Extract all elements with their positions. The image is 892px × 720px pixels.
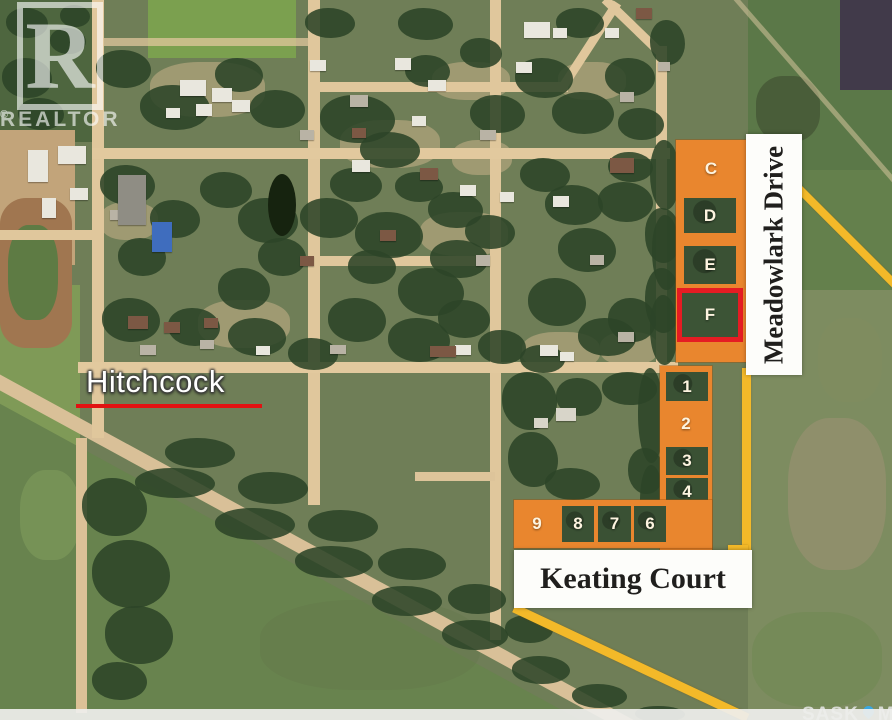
building [380, 230, 396, 241]
lot-marker-C: C [676, 140, 746, 197]
building [540, 345, 558, 356]
tree [460, 38, 502, 68]
building [428, 80, 446, 91]
building [430, 346, 456, 357]
lot-marker-D: D [684, 198, 736, 233]
pond [268, 174, 296, 236]
building [140, 345, 156, 355]
ground-patch [752, 612, 882, 707]
lot-marker-8: 8 [562, 506, 594, 542]
building [352, 160, 370, 172]
road [76, 438, 87, 713]
lot-marker-F: F [677, 288, 743, 342]
tree [305, 8, 355, 38]
lot-marker-3: 3 [666, 447, 708, 475]
tree [650, 20, 685, 65]
building [70, 188, 88, 200]
building [534, 418, 548, 428]
building [605, 28, 619, 38]
bottom-border-strip [0, 709, 892, 720]
building [212, 88, 232, 102]
building [204, 318, 218, 328]
tree [650, 295, 678, 365]
road [308, 0, 320, 505]
building [352, 128, 366, 138]
lot-label-2: 2 [662, 403, 710, 445]
building [256, 346, 270, 355]
tree [618, 108, 664, 140]
tree [258, 238, 306, 276]
field [148, 0, 296, 58]
listing-map-image: CDEF123459876 Meadowlark Drive Keating C… [0, 0, 892, 720]
lot-label-1: 1 [666, 372, 708, 401]
tree [330, 168, 382, 202]
tree [448, 584, 506, 614]
ground-patch [260, 600, 480, 690]
tree [598, 182, 653, 222]
tree [308, 510, 378, 542]
building [524, 22, 550, 38]
highlighted-road [742, 368, 751, 552]
street-banner-keating: Keating Court [514, 550, 752, 608]
tree [348, 250, 396, 284]
tree [478, 330, 526, 364]
building [560, 352, 574, 361]
lot-marker-6: 6 [634, 506, 666, 542]
lot-label-9: 9 [514, 500, 560, 548]
tree [552, 92, 614, 134]
lot-label-7: 7 [598, 506, 631, 542]
tree [442, 620, 508, 650]
building [350, 95, 368, 107]
ground-patch [818, 318, 882, 402]
lot-label-6: 6 [634, 506, 666, 542]
realtor-wordmark: REALTOR® [0, 108, 11, 132]
building [118, 175, 146, 225]
road [415, 472, 495, 481]
ground-patch [20, 470, 80, 560]
building [300, 256, 314, 266]
tree [200, 172, 252, 208]
tree [105, 606, 173, 664]
building [590, 255, 604, 265]
tree [528, 278, 586, 326]
tree [135, 468, 215, 498]
lot-marker-2: 2 [662, 403, 710, 445]
road [0, 230, 94, 240]
tree [545, 468, 600, 500]
building [166, 108, 180, 118]
building [420, 168, 438, 180]
building [128, 316, 148, 329]
building [556, 408, 576, 421]
town-label: Hitchcock [86, 364, 225, 400]
tree [92, 540, 170, 608]
building [620, 92, 634, 102]
building [516, 62, 532, 73]
building [28, 150, 48, 182]
building [618, 332, 634, 342]
road [92, 38, 314, 46]
tree [96, 50, 151, 88]
lot-label-E: E [684, 246, 736, 284]
building [58, 146, 86, 164]
lot-label-F: F [682, 293, 738, 337]
tree [295, 546, 373, 578]
tree [250, 90, 305, 128]
tree [300, 198, 358, 238]
building [636, 8, 652, 19]
building [300, 130, 314, 140]
tree [558, 228, 616, 272]
building [42, 198, 56, 218]
tree [328, 298, 386, 342]
building [480, 130, 496, 140]
lot-marker-7: 7 [598, 506, 631, 542]
tree [215, 58, 263, 92]
tree [218, 268, 270, 310]
field [840, 0, 892, 90]
tree [438, 300, 490, 338]
building [152, 222, 172, 252]
tree [502, 372, 557, 430]
building [658, 62, 670, 71]
street-banner-meadowlark: Meadowlark Drive [746, 134, 802, 375]
tree [288, 338, 338, 370]
tree [82, 478, 147, 536]
tree [512, 656, 570, 684]
lot-marker-1: 1 [666, 372, 708, 401]
tree [215, 508, 295, 540]
tree [165, 438, 235, 468]
street-name-meadowlark: Meadowlark Drive [759, 145, 790, 363]
tree [605, 58, 655, 96]
building [553, 196, 569, 207]
tree [602, 372, 657, 405]
building [500, 192, 514, 202]
tree [470, 95, 525, 133]
building [455, 345, 471, 355]
lot-label-C: C [676, 140, 746, 197]
building [553, 28, 567, 38]
tree [238, 472, 308, 504]
tree [628, 448, 664, 494]
tree [378, 548, 446, 580]
tree [372, 586, 442, 616]
building [232, 100, 250, 112]
building [610, 158, 634, 173]
building [330, 345, 346, 354]
building [476, 255, 490, 266]
lot-marker-E: E [684, 246, 736, 284]
building [200, 340, 214, 349]
tree [398, 8, 453, 40]
lot-marker-9: 9 [514, 500, 560, 548]
building [180, 80, 206, 96]
building [310, 60, 326, 71]
tree [92, 662, 147, 700]
building [460, 185, 476, 196]
ground-patch [788, 418, 886, 570]
building [395, 58, 411, 70]
red-underline [76, 404, 262, 408]
building [412, 116, 426, 126]
lot-label-8: 8 [562, 506, 594, 542]
lot-label-D: D [684, 198, 736, 233]
tree [572, 684, 627, 708]
building [196, 104, 212, 116]
realtor-logo-icon: R [17, 2, 103, 110]
realtor-r-letter: R [25, 8, 94, 104]
building [164, 322, 180, 333]
street-name-keating: Keating Court [514, 550, 752, 608]
lot-label-3: 3 [666, 447, 708, 475]
